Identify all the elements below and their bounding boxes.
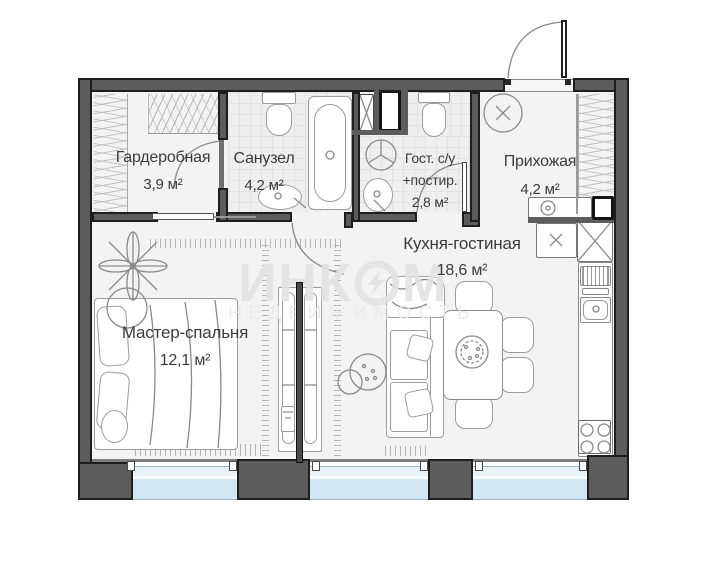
wall	[352, 92, 360, 222]
wall	[401, 88, 408, 134]
toilet-icon	[262, 92, 296, 104]
dishwasher-icon	[580, 266, 611, 286]
window-frame-mark	[127, 461, 135, 471]
vent-shaft-icon	[379, 90, 401, 132]
convector-grill	[385, 446, 430, 456]
wall	[218, 92, 228, 140]
room-label-kitchen-living: Кухня-гостиная 18,6 м²	[382, 230, 542, 284]
chair-icon	[500, 357, 534, 393]
pouf-icon	[101, 410, 128, 443]
entrance-door-arc-icon	[508, 22, 562, 78]
watermark-tagline: НЕДВИЖИМОСТЬ	[228, 303, 477, 325]
floor-plan: ИНКМ НЕДВИЖИМОСТЬ Гардеробная 3,9 м² Сан…	[0, 0, 701, 574]
door-hinge-mark	[505, 79, 511, 85]
wall-corner	[78, 462, 133, 500]
room-area: 18,6 м²	[382, 257, 542, 284]
room-area: 4,2 м²	[470, 176, 610, 204]
chair-icon	[500, 317, 534, 353]
room-name: Кухня-гостиная	[382, 230, 542, 257]
washing-machine-icon	[536, 223, 577, 258]
room-label-master-bedroom: Мастер-спальня 12,1 м²	[105, 319, 265, 375]
wall	[78, 78, 505, 92]
zone-dash-line	[150, 239, 343, 248]
toilet-icon	[418, 92, 450, 103]
window-frame-mark	[475, 461, 483, 471]
entrance-doorway	[505, 79, 573, 92]
wall	[352, 130, 408, 135]
wall-corner	[587, 455, 629, 500]
wall	[78, 78, 92, 468]
sliding-partition-wall	[296, 282, 303, 463]
stove-icon	[578, 420, 611, 454]
room-label-hallway: Прихожая 4,2 м²	[470, 148, 610, 204]
entrance-door-icon	[561, 20, 567, 78]
vent-shaft-icon	[577, 220, 613, 262]
pocket-door-track	[214, 216, 256, 218]
room-label-bathroom: Санузел 4,2 м²	[204, 145, 324, 199]
door-hinge-mark	[565, 79, 571, 85]
chair-icon	[455, 396, 493, 429]
wardrobe-rail-icon	[148, 94, 218, 134]
room-name: Санузел	[204, 145, 324, 172]
window-band	[92, 466, 617, 500]
window-pillar	[237, 459, 310, 500]
window-frame-mark	[579, 461, 587, 471]
vent-shaft-icon	[359, 94, 374, 132]
toilet-icon	[422, 103, 446, 137]
window-frame-mark	[312, 461, 320, 471]
wall	[92, 212, 158, 222]
room-area: 4,2 м²	[204, 172, 324, 199]
pocket-door-icon	[152, 213, 214, 220]
window-frame-mark	[420, 461, 428, 471]
toilet-icon	[266, 104, 292, 136]
vase-icon	[281, 406, 295, 432]
floor-edge-line	[92, 459, 614, 462]
window-frame-mark	[229, 461, 237, 471]
wall	[374, 88, 379, 134]
sofa-pillow	[404, 388, 435, 419]
dishwasher-button-panel	[582, 288, 609, 295]
room-name: Мастер-спальня	[105, 319, 265, 347]
window-pillar	[428, 459, 473, 500]
wall	[614, 78, 629, 462]
room-area: 12,1 м²	[105, 347, 265, 375]
kitchen-sink-basin	[583, 300, 608, 320]
room-name: Прихожая	[470, 148, 610, 176]
